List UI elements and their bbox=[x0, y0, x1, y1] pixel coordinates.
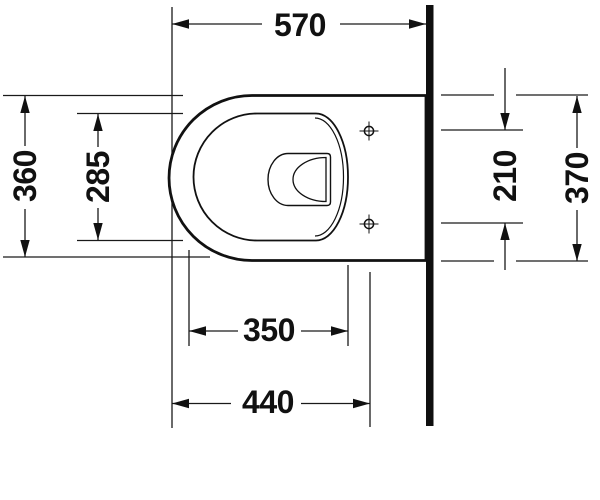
dim-label-bowl-inner-width: 285 bbox=[82, 151, 114, 203]
wall-section-bar bbox=[426, 5, 434, 426]
dim-label-inner-bowl-length: 350 bbox=[243, 314, 295, 346]
drawing-canvas bbox=[0, 0, 600, 500]
dim-label-overall-depth: 570 bbox=[274, 9, 326, 41]
dim-label-overall-width: 370 bbox=[561, 152, 593, 204]
dim-label-fixing-hole-spacing: 210 bbox=[489, 150, 521, 202]
dim-label-front-to-holes: 440 bbox=[242, 386, 294, 418]
drain-outline bbox=[268, 154, 331, 206]
technical-drawing-toilet-plan-view: 570 360 285 210 370 350 440 bbox=[0, 0, 600, 500]
dim-label-seat-width: 360 bbox=[9, 150, 41, 202]
